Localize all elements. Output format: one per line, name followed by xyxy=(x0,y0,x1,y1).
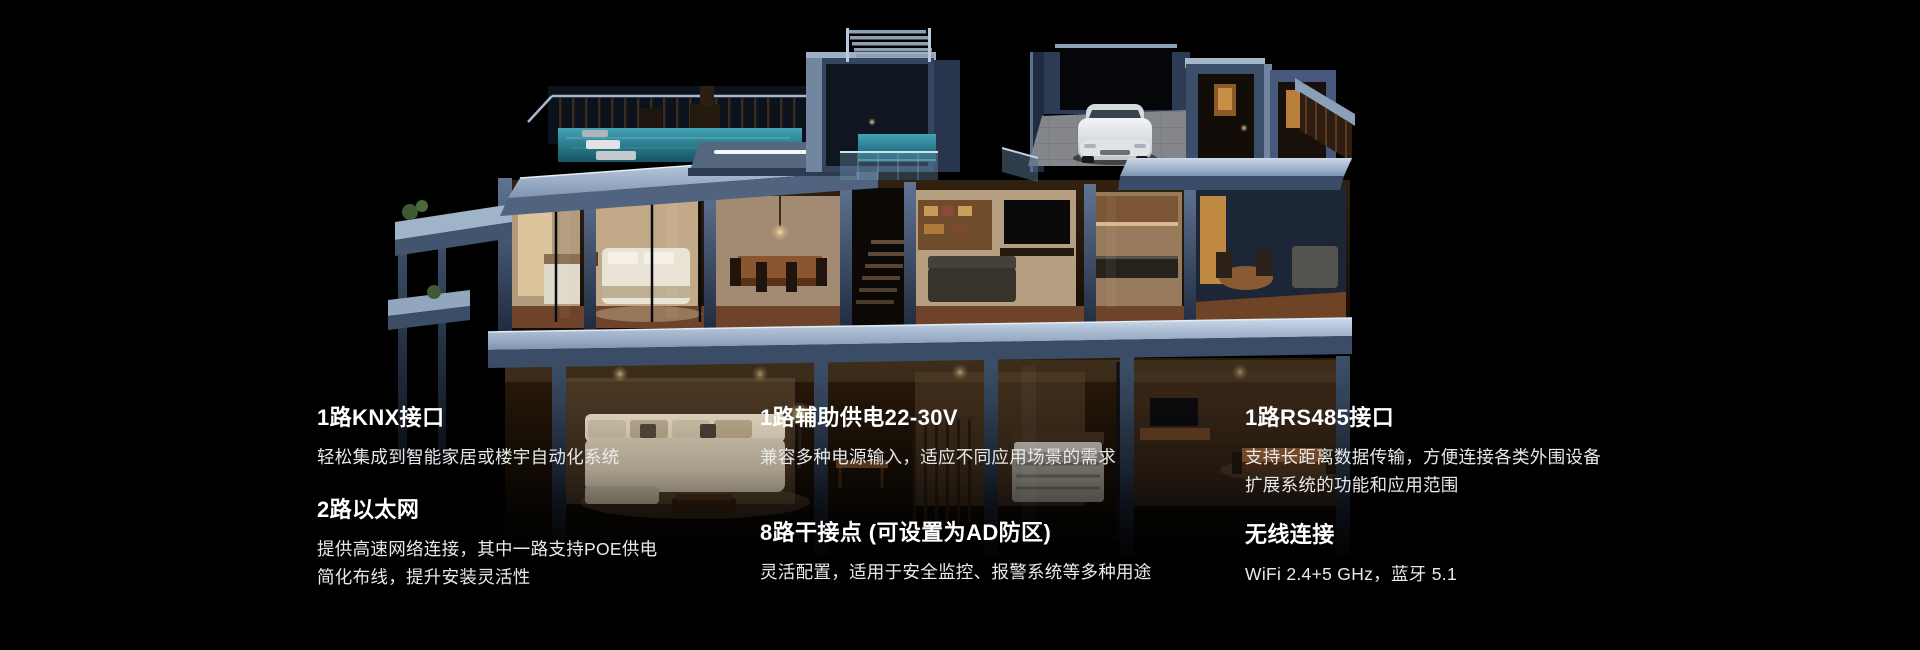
stair-tower xyxy=(806,28,960,180)
house-cutaway-illustration xyxy=(0,0,1920,650)
bottom-fade xyxy=(0,400,1920,650)
feature-banner: 1路KNX接口 轻松集成到智能家居或楼宇自动化系统 2路以太网 提供高速网络连接… xyxy=(0,0,1920,650)
